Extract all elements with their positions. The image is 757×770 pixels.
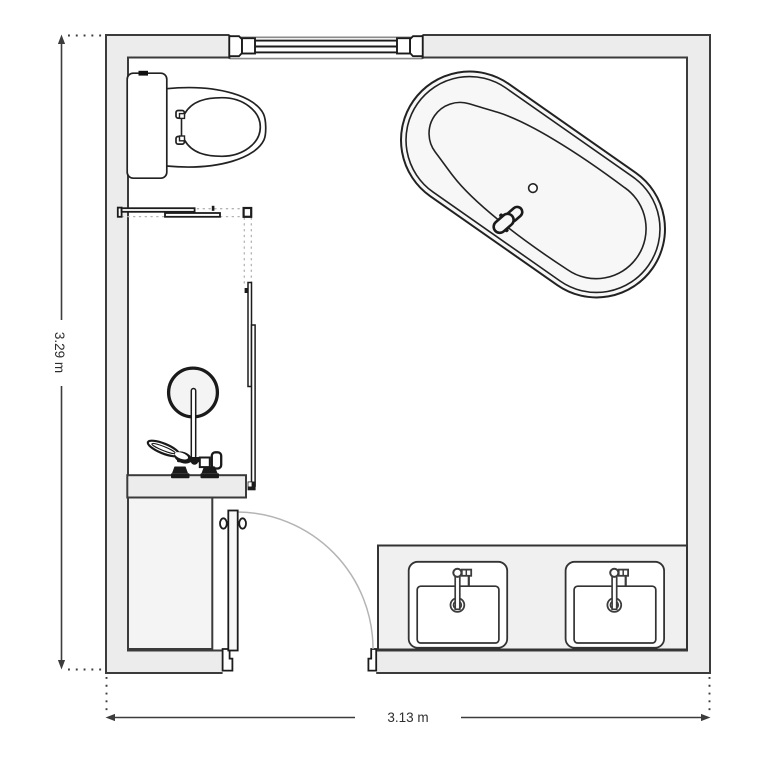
svg-text:3.29 m: 3.29 m <box>52 332 67 373</box>
svg-text:3.13 m: 3.13 m <box>387 710 428 725</box>
